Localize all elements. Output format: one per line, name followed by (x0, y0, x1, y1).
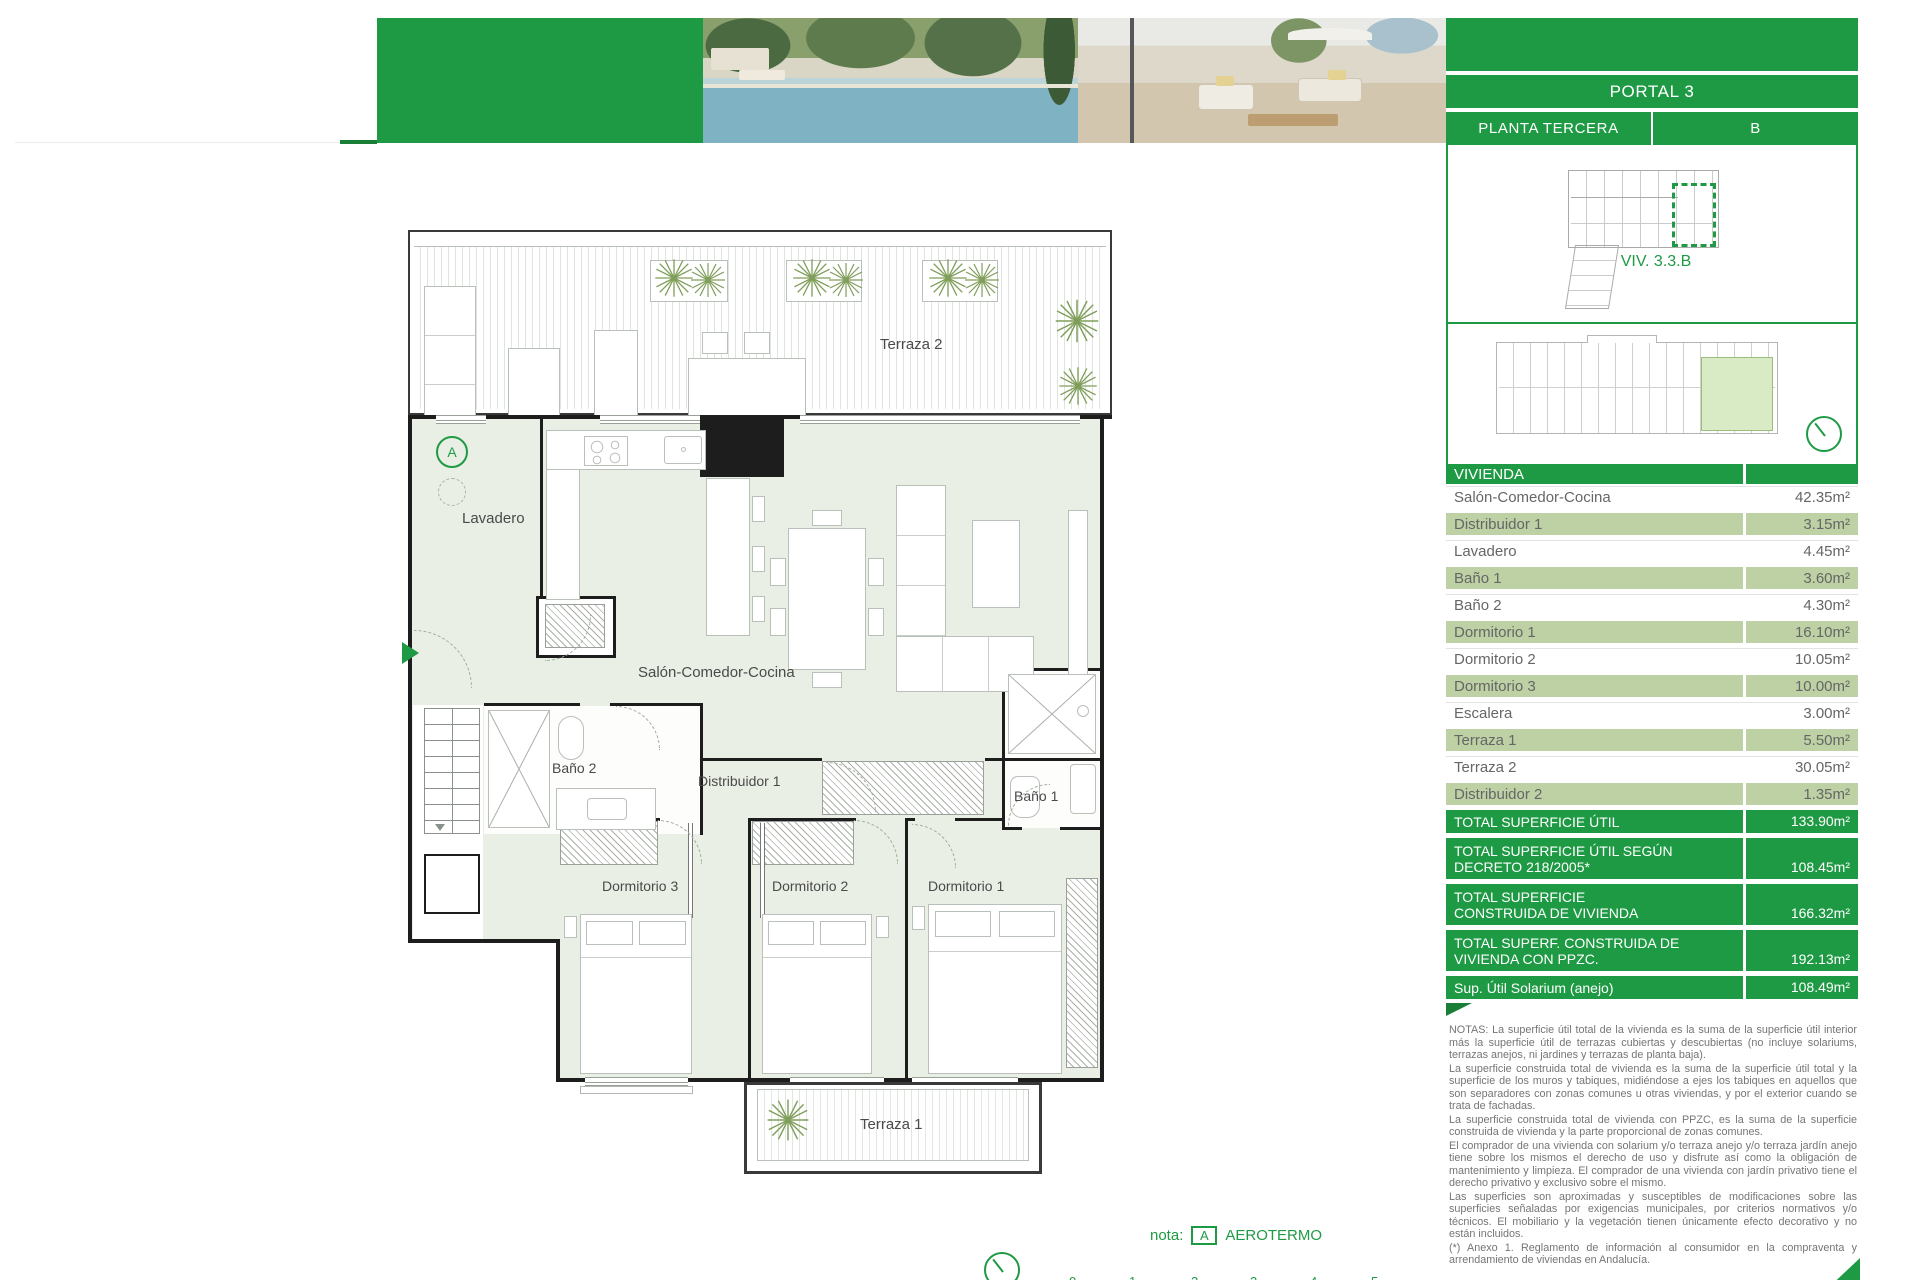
dining-chair (812, 672, 842, 688)
wall-right (1100, 415, 1104, 1082)
wardrobe (1066, 878, 1098, 1068)
floorplan-sheet: PORTAL 3 PLANTA TERCERA B VIV. 3.3.B VIV… (0, 18, 1920, 1280)
table-header-row: VIVIENDA (1446, 464, 1858, 484)
room-label-bano2: Baño 2 (552, 760, 596, 776)
room-name: Baño 1 (1446, 567, 1743, 589)
note-paragraph: NOTAS: La superficie útil total de la vi… (1449, 1024, 1857, 1062)
building-unit-highlight (1701, 357, 1773, 431)
plant-icon (826, 260, 866, 300)
room-area: 30.05m² (1746, 757, 1858, 778)
building-strip-drawing (1496, 342, 1778, 434)
note-paragraph: La superficie construida total de vivien… (1449, 1063, 1857, 1113)
staircase (424, 708, 480, 834)
wall-bano2-top (610, 703, 700, 706)
terrace-cushion-2 (1328, 70, 1346, 80)
table-row: Salón-Comedor-Cocina42.35m² (1446, 486, 1858, 508)
table-row: Distribuidor 13.15m² (1446, 513, 1858, 535)
window (800, 415, 1080, 424)
compass-needle (992, 1259, 1003, 1273)
portal-header: PORTAL 3 (1446, 75, 1858, 108)
table-row: Baño 24.30m² (1446, 594, 1858, 616)
bed (580, 914, 692, 1074)
aerotermo-letter: A (447, 444, 456, 460)
pool-lounger (739, 70, 785, 80)
room-name: Dormitorio 1 (1446, 621, 1743, 643)
table-corner-notch (1446, 1003, 1472, 1016)
scale-tick: 3 (1250, 1274, 1257, 1280)
letter-label: B (1750, 120, 1761, 137)
total-label-2: VIVIENDA CON PPZC. (1454, 951, 1743, 967)
stool (752, 596, 765, 622)
wall-dorm1-top (955, 818, 1002, 821)
scale-tick: 1 (1129, 1274, 1136, 1280)
room-label-dorm3: Dormitorio 3 (602, 878, 678, 894)
room-name: Terraza 2 (1446, 757, 1743, 778)
north-compass-icon (984, 1252, 1020, 1280)
table-header-label: VIVIENDA (1454, 466, 1524, 483)
unit-code-label: VIV. 3.3.B (1596, 253, 1716, 271)
wall-bano2-right (700, 703, 703, 835)
room-label-terraza1: Terraza 1 (860, 1116, 923, 1133)
sink-icon (664, 436, 702, 464)
wall-bano1-left (1002, 668, 1005, 830)
terrace-sofa-1 (1198, 84, 1254, 110)
table-row: Dormitorio 210.05m² (1446, 648, 1858, 670)
room-name: Dormitorio 3 (1446, 675, 1743, 697)
planta-label: PLANTA TERCERA (1478, 120, 1618, 137)
buildingstrip-section (1446, 322, 1858, 464)
stool (752, 546, 765, 572)
wall-bano1-bottom (1002, 827, 1022, 830)
room-label-bano1: Baño 1 (1014, 788, 1058, 804)
keyplan-section: VIV. 3.3.B (1446, 145, 1858, 322)
corner-triangle (1826, 1258, 1860, 1280)
aerotermo-marker: A (436, 436, 468, 468)
pool-edge (703, 84, 1078, 88)
table-row: Escalera3.00m² (1446, 702, 1858, 724)
note-paragraph: (*) Anexo 1. Reglamento de información a… (1449, 1242, 1857, 1267)
stool (752, 496, 765, 522)
nota-prefix: nota: (1150, 1227, 1183, 1244)
siteplan-band (1571, 197, 1678, 198)
room-label-dorm2: Dormitorio 2 (772, 878, 848, 894)
table-row: Terraza 15.50m² (1446, 729, 1858, 751)
letter-cell: B (1653, 112, 1858, 145)
total-label: TOTAL SUPERFICIE ÚTIL (1454, 814, 1743, 830)
blanket-line (929, 951, 1061, 952)
window (585, 1077, 688, 1086)
blanket-line (581, 957, 691, 958)
total-row: TOTAL SUPERFICIE ÚTIL 133.90m² (1446, 810, 1858, 833)
total-label-2: DECRETO 218/2005* (1454, 859, 1743, 875)
table-row: Dormitorio 310.00m² (1446, 675, 1858, 697)
dining-table (788, 528, 866, 670)
table-row: Baño 13.60m² (1446, 567, 1858, 589)
total-value: 133.90m² (1746, 810, 1858, 833)
header-rule-accent (340, 140, 377, 144)
total-row: TOTAL SUPERFICIECONSTRUIDA DE VIVIENDA 1… (1446, 884, 1858, 925)
dining-chair (812, 510, 842, 526)
pool-cabana (711, 48, 769, 70)
table-row: Lavadero4.45m² (1446, 540, 1858, 562)
total-row: TOTAL SUPERF. CONSTRUIDA DEVIVIENDA CON … (1446, 930, 1858, 971)
sink-drain (681, 447, 686, 452)
building-step (1587, 335, 1657, 343)
room-name: Lavadero (1446, 541, 1743, 562)
plant-icon (688, 260, 728, 300)
plant-icon (1056, 364, 1100, 408)
total-value: 108.45m² (1746, 838, 1858, 879)
shower-drain (1077, 705, 1089, 717)
table-row: Distribuidor 21.35m² (1446, 783, 1858, 805)
room-name: Salón-Comedor-Cocina (1446, 487, 1743, 508)
stairs-rail (452, 709, 453, 833)
room-label-dorm1: Dormitorio 1 (928, 878, 1004, 894)
pillow (935, 911, 991, 937)
kitchen-island (706, 478, 750, 636)
vanity-sink (556, 788, 656, 830)
basin (587, 798, 627, 820)
dining-chair (770, 558, 786, 586)
total-label: TOTAL SUPERF. CONSTRUIDA DE (1454, 935, 1743, 951)
total-label: TOTAL SUPERFICIE (1454, 889, 1743, 905)
bed (762, 914, 872, 1074)
terrace-sofa-2 (1298, 78, 1362, 102)
note-paragraph: Las superficies son aproximadas y suscep… (1449, 1191, 1857, 1241)
wall-corridor-top (700, 758, 822, 761)
room-name: Dormitorio 2 (1446, 649, 1743, 670)
room-name: Baño 2 (1446, 595, 1743, 616)
kitchen-counter-side (546, 470, 580, 600)
terrace-dining-chair (744, 332, 770, 354)
room-label-salon: Salón-Comedor-Cocina (638, 664, 795, 681)
total-value: 166.32m² (1746, 884, 1858, 925)
total-label: TOTAL SUPERFICIE ÚTIL SEGÚN (1454, 843, 1743, 859)
note-paragraph: El comprador de una vivienda con solariu… (1449, 1140, 1857, 1190)
aerotermo-unit-outline (438, 478, 466, 506)
wardrobe (752, 821, 854, 865)
terrace-dining-chair (702, 332, 728, 354)
nightstand (876, 916, 889, 938)
terrace-umbrella (1288, 28, 1372, 40)
wall-bottom-left (408, 939, 560, 943)
room-area: 4.30m² (1746, 595, 1858, 616)
scale-tick: 2 (1191, 1274, 1198, 1280)
planta-cell: PLANTA TERCERA (1446, 112, 1651, 145)
bed (928, 904, 1062, 1074)
room-name: Distribuidor 1 (1446, 513, 1743, 535)
shower (1008, 674, 1096, 754)
dining-chair (770, 608, 786, 636)
plant-icon (1052, 296, 1102, 346)
room-label-distribuidor1: Distribuidor 1 (698, 773, 780, 789)
table-row: Dormitorio 116.10m² (1446, 621, 1858, 643)
room-area: 3.00m² (1746, 703, 1858, 724)
hob-icon (584, 436, 628, 466)
room-name: Escalera (1446, 703, 1743, 724)
wall-inner-left (556, 939, 560, 1082)
plant-icon (962, 260, 1002, 300)
room-name: Distribuidor 2 (1446, 783, 1743, 805)
total-label: Sup. Útil Solarium (anejo) (1454, 980, 1743, 996)
dining-chair (868, 558, 884, 586)
aerotermo-legend: nota: A AEROTERMO (1150, 1226, 1322, 1245)
sofa (896, 485, 946, 638)
sink (1070, 764, 1096, 814)
entrance-arrow-icon (402, 642, 419, 664)
water-heater (558, 716, 584, 760)
wall-bano2-top (484, 703, 580, 706)
panel-top-block (1446, 18, 1858, 71)
wall-left (408, 415, 412, 943)
outside-cutout (412, 943, 558, 1082)
pillow (768, 921, 814, 945)
nightstand (564, 916, 577, 938)
room-area: 1.35m² (1746, 783, 1858, 805)
scale-tick: 4 (1310, 1274, 1317, 1280)
total-row: TOTAL SUPERFICIE ÚTIL SEGÚNDECRETO 218/2… (1446, 838, 1858, 879)
pillow (586, 921, 633, 945)
plant-icon (764, 1096, 812, 1144)
photo-terrace (1078, 18, 1446, 143)
room-area: 3.60m² (1746, 567, 1858, 589)
portal-label: PORTAL 3 (1610, 82, 1695, 102)
room-label-terraza2: Terraza 2 (880, 336, 943, 353)
unit-highlight-box (1672, 183, 1716, 247)
blanket-line (763, 957, 871, 958)
total-value: 192.13m² (1746, 930, 1858, 971)
note-paragraph: La superficie construida total de vivien… (1449, 1114, 1857, 1139)
room-area: 42.35m² (1746, 487, 1858, 508)
window (600, 415, 700, 424)
stairs-arrow-icon (435, 824, 445, 831)
pillow (820, 921, 866, 945)
room-area: 5.50m² (1746, 729, 1858, 751)
total-row: Sup. Útil Solarium (anejo) 108.49m² (1446, 976, 1858, 999)
wall-dorm-divider (748, 818, 751, 1078)
brand-green-block (377, 18, 703, 143)
pillow (639, 921, 686, 945)
total-value: 108.49m² (1746, 976, 1858, 999)
scale-tick: 0 (1069, 1274, 1076, 1280)
room-label-lavadero: Lavadero (462, 510, 525, 527)
ottoman (972, 520, 1020, 608)
wall-pillar (700, 415, 784, 477)
scale-tick: 5 (1371, 1274, 1378, 1280)
terrace-bench (1248, 114, 1338, 126)
room-area: 10.00m² (1746, 675, 1858, 697)
legal-notes: NOTAS: La superficie útil total de la vi… (1449, 1024, 1857, 1268)
nightstand (912, 906, 925, 930)
door-leaf (760, 823, 765, 918)
tv-bench (1068, 510, 1088, 682)
room-name: Terraza 1 (1446, 729, 1743, 751)
shower (488, 710, 550, 828)
dining-chair (868, 608, 884, 636)
room-area: 10.05m² (1746, 649, 1858, 670)
table-row: Terraza 230.05m² (1446, 756, 1858, 778)
terrace-cushion (1216, 76, 1234, 86)
aerotermo-box: A (1191, 1226, 1217, 1245)
pillow (999, 911, 1055, 937)
room-area: 16.10m² (1746, 621, 1858, 643)
total-label-2: CONSTRUIDA DE VIVIENDA (1454, 905, 1743, 921)
compass-needle (1814, 423, 1825, 437)
terrace-glass-edge (1130, 18, 1134, 143)
aerotermo-text: AEROTERMO (1225, 1227, 1322, 1244)
terrace-chair (508, 348, 560, 420)
wall-dorm-divider (905, 818, 908, 1078)
window-sill (580, 1086, 693, 1094)
wall-bano1-bottom (1060, 827, 1102, 830)
window (436, 415, 486, 424)
room-area: 3.15m² (1746, 513, 1858, 535)
room-area: 4.45m² (1746, 541, 1858, 562)
photo-pool (703, 18, 1078, 143)
area-table: VIVIENDA Salón-Comedor-Cocina42.35m² Dis… (1446, 464, 1858, 999)
north-compass-icon (1806, 416, 1842, 452)
shaft-box (424, 854, 480, 914)
header-rule (15, 142, 340, 143)
